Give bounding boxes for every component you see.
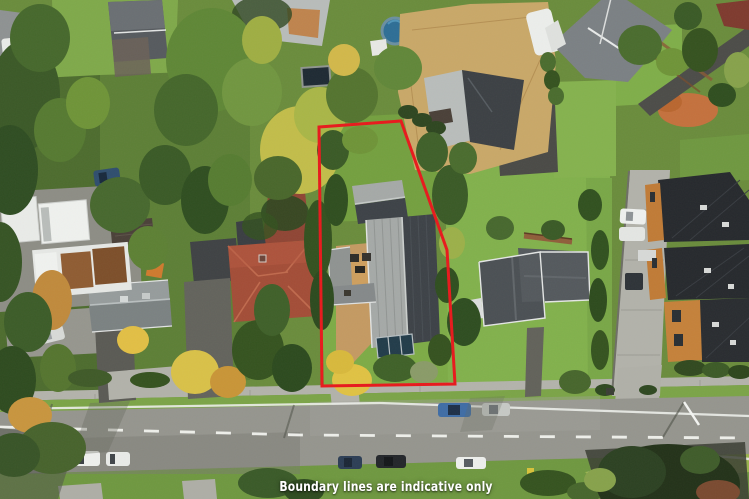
aerial-scene (0, 0, 749, 499)
boundary-disclaimer-caption: Boundary lines are indicative only (279, 479, 492, 495)
aerial-photo: Boundary lines are indicative only (0, 0, 749, 499)
photo-grain (0, 0, 749, 499)
